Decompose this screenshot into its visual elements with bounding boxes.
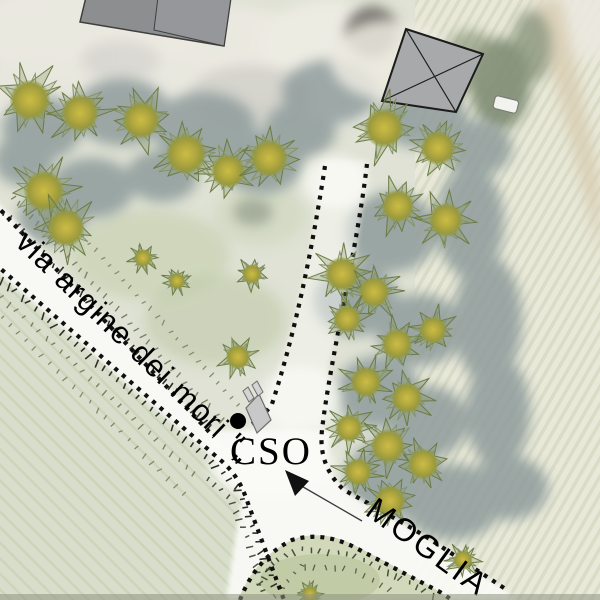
cso-label: CSO xyxy=(230,430,312,473)
site-plan-svg: via argine dei mori "„ CSO MOGLIA xyxy=(0,0,600,600)
site-plan-map: via argine dei mori "„ CSO MOGLIA xyxy=(0,0,600,600)
map-border xyxy=(0,594,600,600)
